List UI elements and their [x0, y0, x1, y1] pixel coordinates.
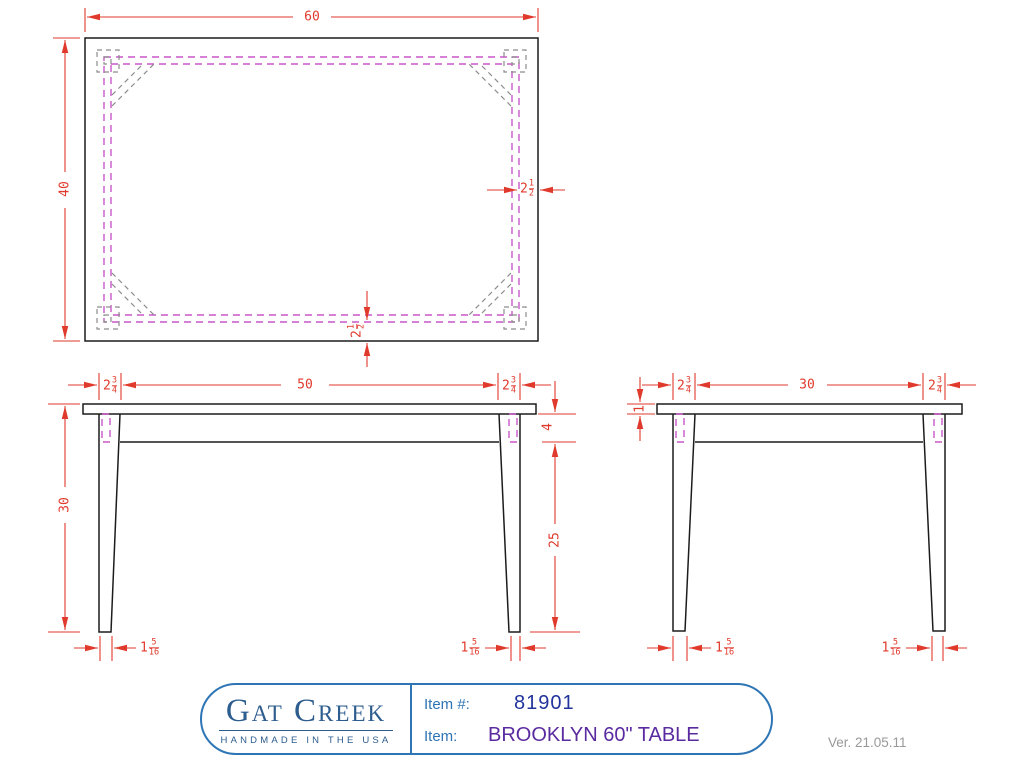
side-leg-span-dimension: 30 — [799, 379, 815, 392]
front-view-hidden-tenons — [102, 414, 517, 442]
title-block: Gat Creek HANDMADE IN THE USA Item #: 81… — [200, 683, 773, 755]
front-leg-width-right-dimension: 234 — [502, 376, 516, 395]
item-info: Item #: 81901 Item: BROOKLYN 60" TABLE — [412, 685, 771, 753]
brand-logo: Gat Creek HANDMADE IN THE USA — [202, 685, 410, 753]
plan-depth-dimension: 40 — [59, 181, 72, 197]
front-overall-height-dimension: 30 — [59, 497, 72, 513]
plan-view-tabletop-outline — [85, 38, 538, 341]
side-leg-width-left-dimension: 234 — [677, 376, 691, 395]
front-apron-height-dimension: 4 — [542, 423, 555, 431]
side-foot-width-left-dimension: 1516 — [715, 638, 734, 657]
front-foot-width-right-dimension: 1516 — [460, 638, 479, 657]
logo-divider-rule — [219, 730, 393, 731]
front-leg-width-left-dimension: 234 — [103, 376, 117, 395]
item-name-value: BROOKLYN 60" TABLE — [488, 724, 700, 747]
front-leg-clearance-dimension: 25 — [549, 532, 562, 548]
front-leg-span-dimension: 50 — [297, 379, 313, 392]
item-number-row: Item #: 81901 — [424, 692, 771, 715]
side-leg-width-right-dimension: 234 — [928, 376, 942, 395]
plan-apron-inset-side-dimension: 212 — [520, 179, 534, 198]
plan-view-hidden-legs — [97, 50, 526, 329]
item-number-label: Item #: — [424, 696, 486, 713]
brand-tagline: HANDMADE IN THE USA — [221, 735, 392, 746]
item-name-row: Item: BROOKLYN 60" TABLE — [424, 724, 771, 747]
brand-name: Gat Creek — [226, 695, 386, 728]
front-view-dimension-lines — [48, 373, 580, 661]
item-number-value: 81901 — [514, 692, 575, 715]
front-foot-width-left-dimension: 1516 — [140, 638, 159, 657]
item-name-label: Item: — [424, 728, 486, 745]
side-foot-width-right-dimension: 1516 — [881, 638, 900, 657]
side-view-hidden-tenons — [676, 414, 942, 442]
plan-width-dimension: 60 — [304, 11, 320, 24]
plan-apron-inset-bottom-dimension: 212 — [347, 324, 366, 338]
plan-view-corner-braces — [112, 64, 511, 315]
plan-view-dimension-lines — [53, 8, 565, 367]
version-note: Ver. 21.05.11 — [828, 735, 907, 750]
side-view-outline — [657, 404, 962, 631]
front-view-outline — [83, 404, 536, 632]
side-top-thickness-dimension: 1 — [634, 405, 647, 413]
plan-view-hidden-apron — [104, 57, 519, 322]
